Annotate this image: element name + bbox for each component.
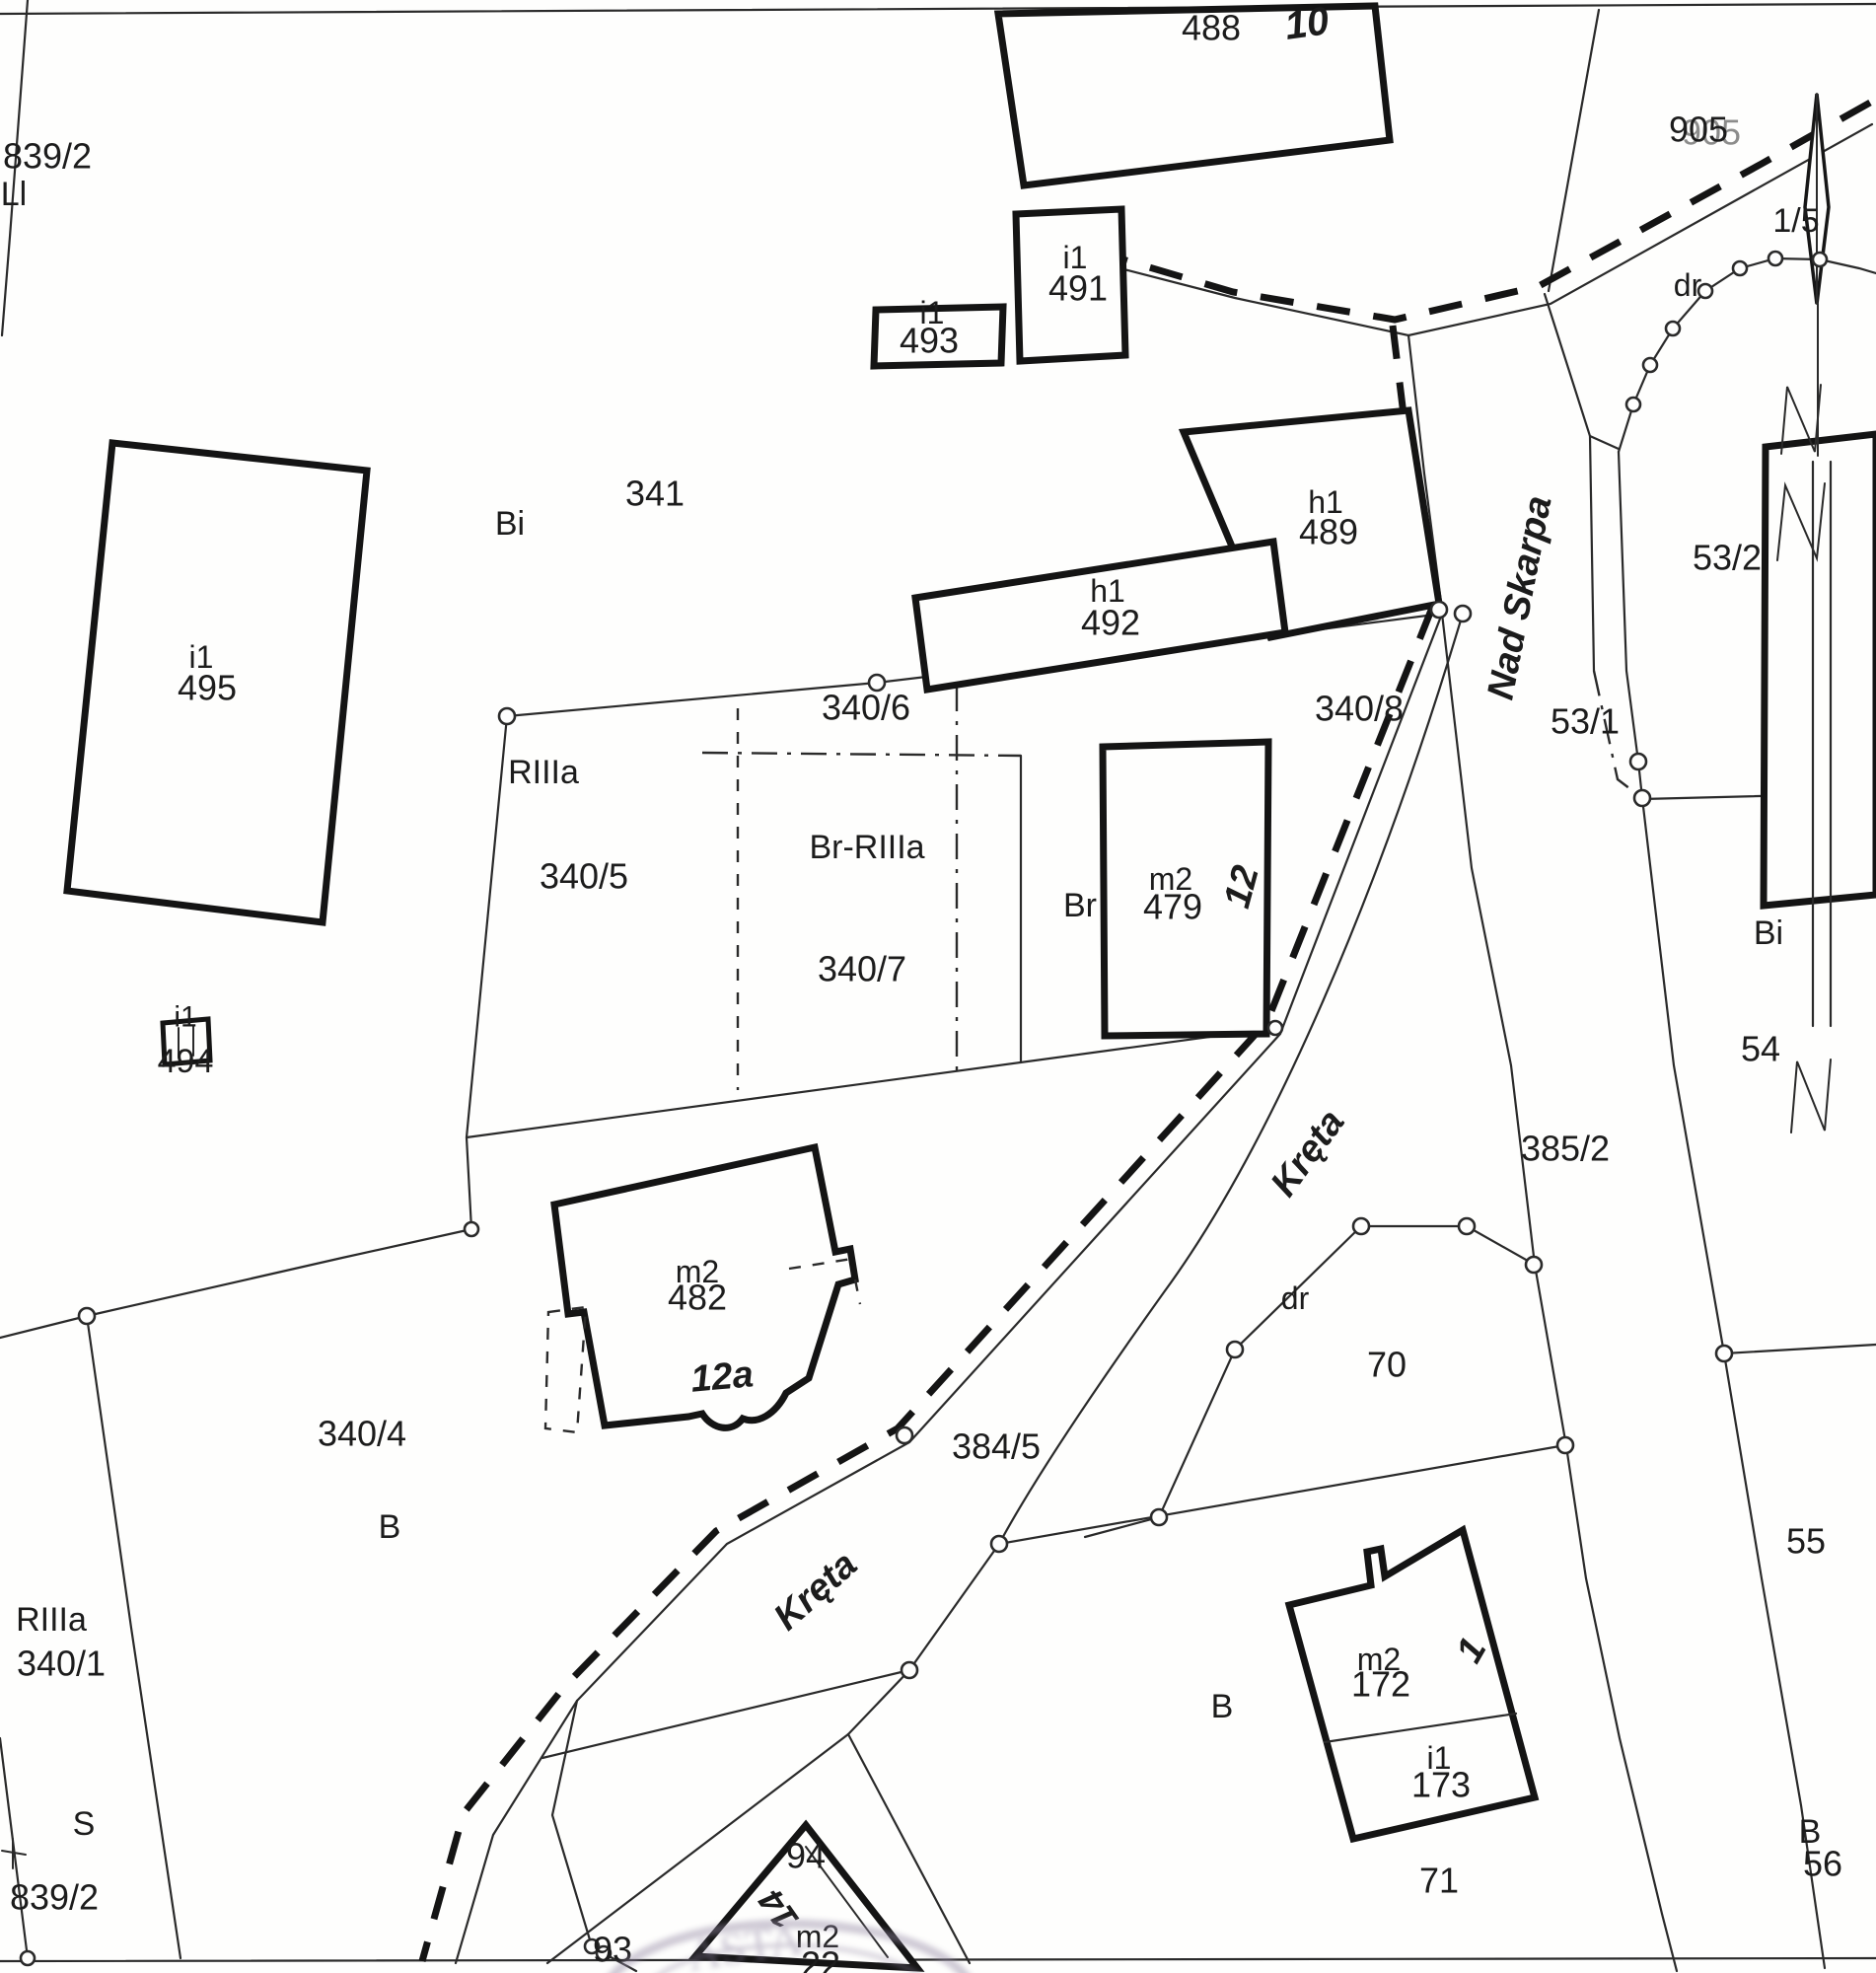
building-482-annex-left [545, 1307, 586, 1432]
use-b-right: B [1211, 1688, 1234, 1725]
street-kreta-upper: Kręta [1263, 1102, 1352, 1204]
house-number-12a: 12a [689, 1353, 756, 1400]
parcel-70: 70 [1367, 1345, 1407, 1385]
parcel-54: 54 [1741, 1029, 1780, 1069]
stamp-text: ASTA [685, 1913, 806, 1973]
building-494-use: i1 [174, 1001, 196, 1034]
parcel-56: 56 [1803, 1844, 1842, 1884]
parcel-340-5: 340/5 [540, 856, 628, 897]
building-495-number: 495 [178, 668, 237, 708]
use-riiia-bottom: RIIIa [16, 1601, 87, 1639]
parcel-53-1: 53/1 [1551, 701, 1620, 742]
stamp: ASTA [602, 1913, 976, 1973]
street-kreta-lower: Kręta [766, 1544, 865, 1639]
parcel-94: 94 [786, 1836, 826, 1876]
use-dr-lower: dr [1281, 1280, 1310, 1316]
crossing-mark-icon [1791, 1060, 1831, 1133]
parcel-839-2-bottom: 839/2 [10, 1877, 99, 1918]
cadastral-map-canvas: 839/2Ll48810905905i1491i1493341Bii1495h1… [0, 0, 1876, 1973]
building-491-number: 491 [1048, 268, 1108, 309]
street-nad-skarpa: Nad Skarpa [1479, 492, 1559, 702]
use-bi-left: Bi [495, 505, 525, 543]
use-bi-right: Bi [1754, 914, 1783, 952]
use-br: Br [1063, 887, 1097, 924]
use-b-left: B [379, 1508, 401, 1546]
use-dr-upper: dr [1674, 267, 1702, 303]
parcel-1-5: 1/5 [1772, 202, 1819, 240]
parcel-905: 905 [1669, 110, 1728, 150]
building-492-number: 492 [1081, 603, 1140, 643]
building-494-number: 494 [158, 1043, 214, 1080]
house-number-10: 10 [1282, 0, 1332, 48]
building-479-number: 479 [1143, 887, 1202, 927]
building-53-2 [1764, 434, 1876, 906]
parcel-53-2: 53/2 [1693, 538, 1762, 578]
building-482-number: 482 [668, 1278, 727, 1318]
parcel-341: 341 [625, 474, 685, 514]
parcel-384-5: 384/5 [952, 1426, 1041, 1467]
use-s: S [73, 1805, 96, 1843]
building-493-number: 493 [900, 321, 959, 361]
building-488-number: 488 [1182, 8, 1241, 48]
buildings [67, 6, 1876, 1968]
parcel-385-2: 385/2 [1521, 1129, 1610, 1169]
parcel-71: 71 [1419, 1861, 1459, 1901]
parcel-boundaries-340-strip [702, 686, 1021, 1090]
parcel-839-2-top: 839/2 [3, 136, 92, 177]
use-br-riiia: Br-RIIIa [809, 829, 924, 866]
parcel-340-4: 340/4 [318, 1414, 406, 1454]
parcel-340-6: 340/6 [822, 688, 910, 728]
parcel-55: 55 [1786, 1521, 1826, 1562]
parcel-ll-top: Ll [1, 176, 27, 213]
building-489-number: 489 [1299, 512, 1358, 552]
building-172-number: 172 [1351, 1664, 1410, 1705]
parcel-340-7: 340/7 [818, 949, 906, 989]
building-173-number: 173 [1411, 1765, 1471, 1805]
parcel-340-1: 340/1 [17, 1644, 106, 1684]
use-riiia-left: RIIIa [508, 754, 579, 791]
parcel-340-8: 340/8 [1315, 689, 1404, 729]
